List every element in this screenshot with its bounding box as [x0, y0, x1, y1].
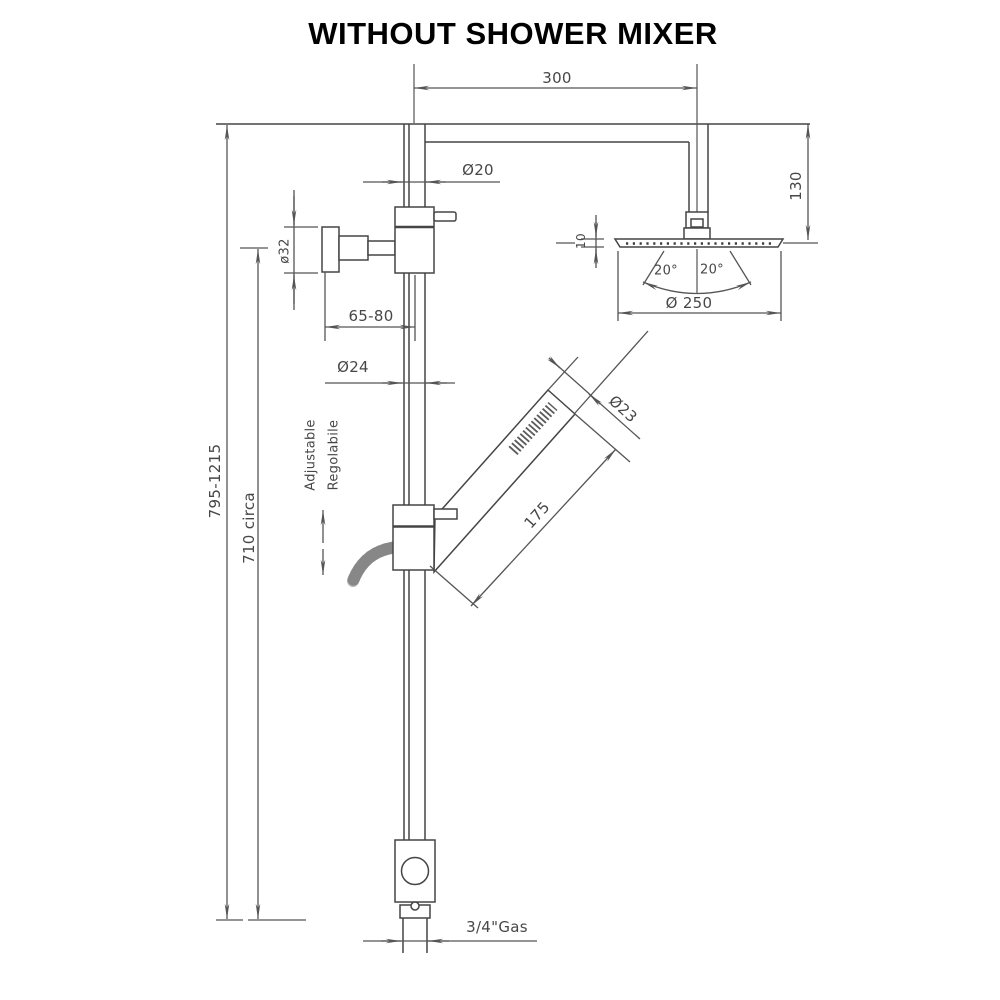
adjustable-note-en: Adjustable — [304, 419, 319, 490]
dim-arm-diameter-label: Ø20 — [462, 161, 494, 179]
dim-total-height-label: 795-1215 — [206, 444, 224, 519]
inlet-nut-detent — [411, 902, 419, 910]
dim-head-offset-label: 130 — [787, 171, 805, 201]
inlet-pipe — [403, 918, 427, 953]
dim-23-arrow-upper — [549, 358, 560, 368]
drawing-title: WITHOUT SHOWER MIXER — [308, 16, 718, 52]
center-lines — [414, 64, 697, 293]
wall-flange — [322, 227, 339, 272]
spray-angle-right-label: 20° — [700, 263, 724, 278]
dim-pipe-diameter-label: Ø24 — [337, 358, 369, 376]
hand-shower-body — [434, 390, 575, 572]
diverter-body — [395, 207, 434, 273]
dim-wall-distance-label: 65-80 — [348, 307, 393, 325]
bracket-cylinder — [339, 236, 368, 260]
shower-head — [615, 212, 783, 285]
inlet-connection-label: 3/4"Gas — [466, 918, 528, 936]
wall-bracket-and-diverter — [322, 207, 456, 273]
water-inlet-block — [395, 840, 435, 918]
dim-head-diameter-label: Ø 250 — [666, 294, 713, 312]
dimension-arrows — [227, 88, 808, 941]
slider-knob — [434, 509, 457, 519]
dim-head-thickness-label: 10 — [574, 233, 588, 249]
dimension-extension-lines — [216, 182, 818, 941]
inlet-port — [402, 858, 429, 885]
dim-wall-flange-label: ø32 — [278, 238, 293, 263]
adjustable-note-it: Regolabile — [327, 420, 342, 491]
drawing-linework — [0, 0, 1000, 1000]
dim-lower-height-label: 710 circa — [240, 492, 258, 564]
hose-braid-texture — [353, 547, 398, 581]
main-pipe-and-arm — [216, 124, 810, 953]
dim-arm-length-label: 300 — [542, 69, 572, 87]
head-base — [684, 228, 710, 239]
head-down-pipe — [689, 124, 708, 212]
head-connector-inner — [691, 219, 703, 227]
hand-shower — [434, 390, 575, 572]
technical-drawing: WITHOUT SHOWER MIXER 300 Ø20 130 10 20° … — [0, 0, 1000, 1000]
diverter-handle — [434, 212, 456, 221]
dim-23-arrow-lower — [589, 394, 600, 404]
spray-angle-left-label: 20° — [654, 264, 678, 279]
slider-body — [393, 505, 434, 570]
shower-hose — [353, 547, 398, 581]
bracket-stem — [368, 241, 395, 255]
